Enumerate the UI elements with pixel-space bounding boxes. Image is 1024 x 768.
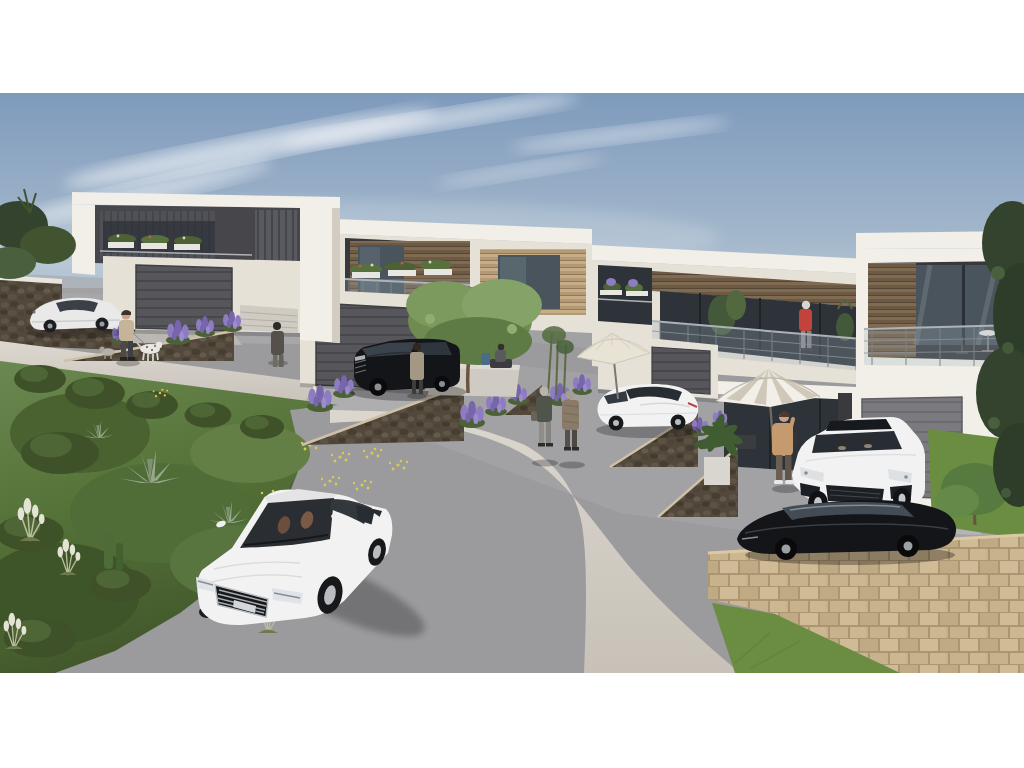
- entry-steps: [240, 305, 298, 333]
- garage-door: [136, 265, 232, 331]
- rendering-photo: [0, 93, 1024, 673]
- rendering-page: [0, 0, 1024, 768]
- black-suv: [350, 339, 466, 401]
- white-coupe: [596, 384, 700, 438]
- small-balcony: [598, 265, 652, 325]
